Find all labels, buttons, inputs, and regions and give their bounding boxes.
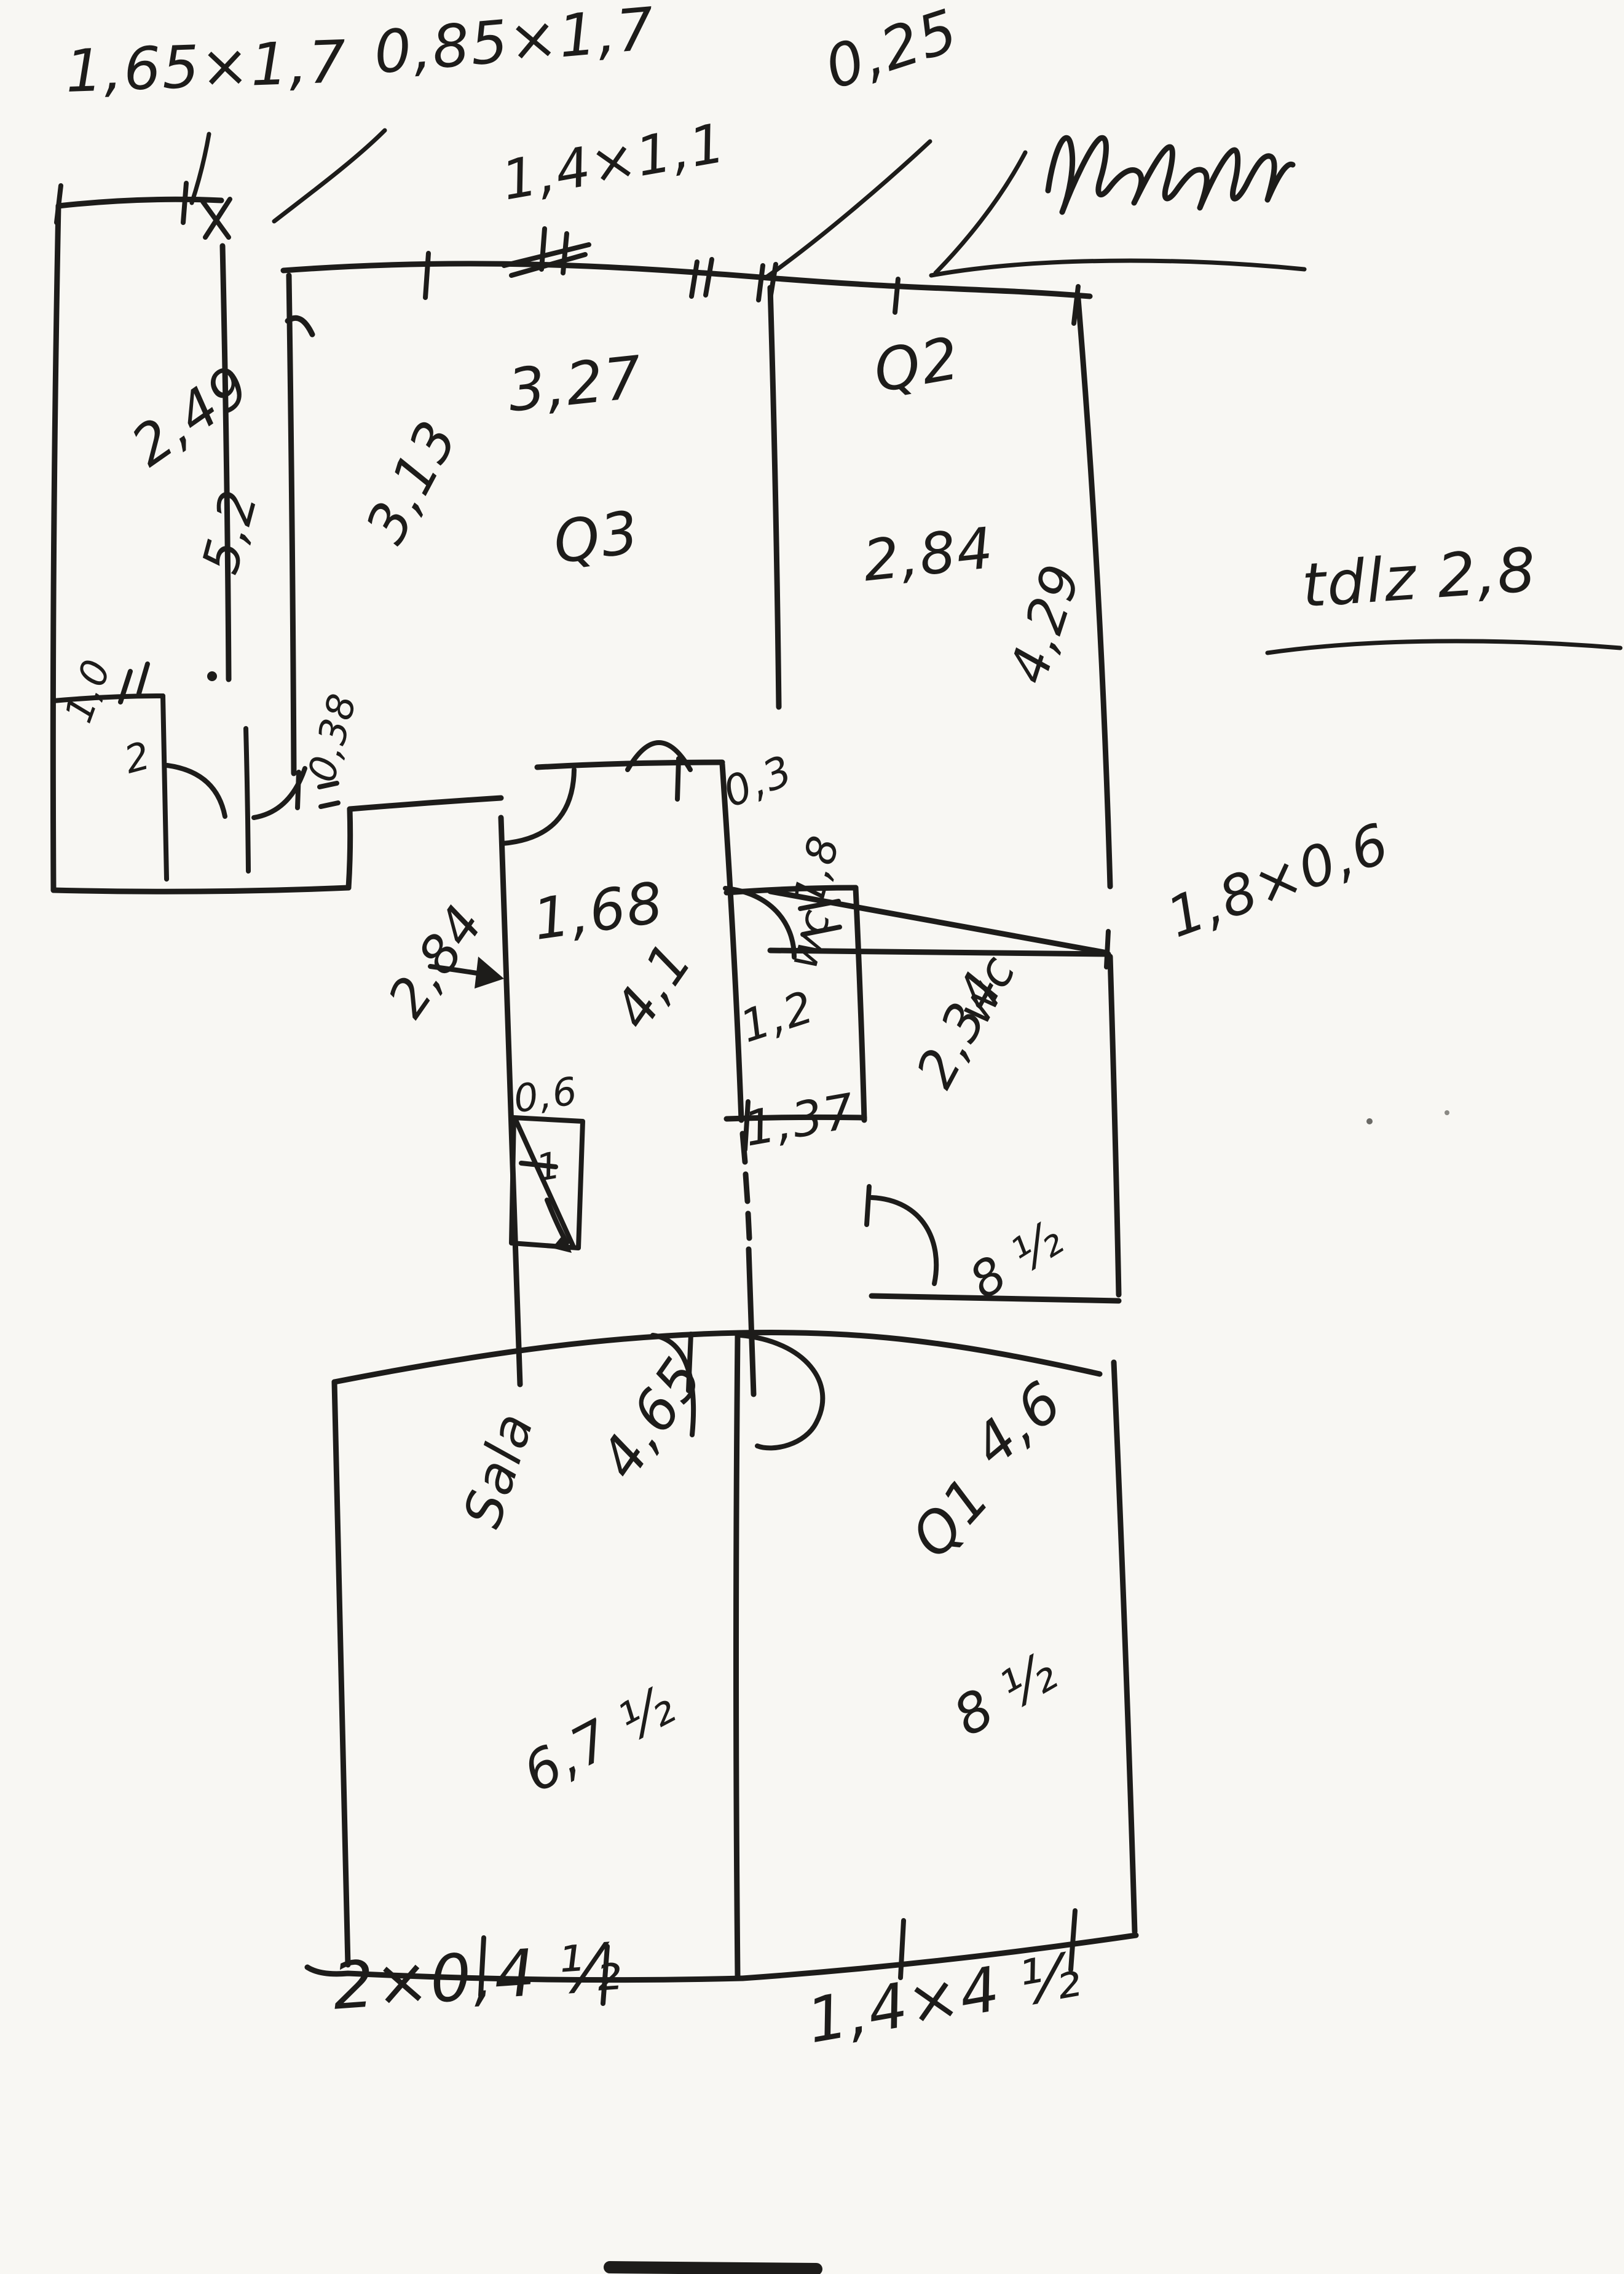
q2-name-label: Q2 [870,330,964,402]
wall-rooma-bottom [53,888,349,891]
wall-sala-q1-divider [736,1335,738,1976]
bottom-dim-left-label: 2×0,4 ½ [331,1935,624,2019]
dim-label-window-a: 1,65×1,7 [65,33,348,101]
q3-name-label: Q3 [550,503,643,573]
wall-wc2-right [1110,957,1119,1295]
speck-1 [1366,1118,1373,1124]
tick-window-1 [542,229,545,269]
closet-slash2 [139,664,148,693]
tick-top-3 [706,259,712,295]
tick-wedge-end [1106,931,1108,967]
closet-dot [207,671,217,681]
scan-edge-strip [610,2267,816,2269]
wall-wc-divider [856,888,864,1120]
shaft-width-label: 0,6 [511,1072,580,1118]
tick-top-1 [425,253,428,298]
wall-bottom-band-top [334,1333,1100,1382]
wall-q1-right [1114,1362,1135,1932]
leader-085 [274,130,385,221]
wall-rooma-left [53,206,58,890]
wc2-door-arc [872,1198,936,1284]
leader-scribble [936,152,1025,273]
closet-right [163,696,167,879]
wc2-door-tick [867,1186,869,1225]
wall-hall-right-lower [749,1249,754,1394]
leader-025 [767,141,930,277]
wall-rooma-right [223,246,229,679]
q3-door-tick [677,759,679,799]
wall-hall-right-dash2 [746,1174,747,1201]
window-icon [504,245,589,275]
note-label: tdlz 2,8 [1300,540,1539,616]
hall-entry-arc [503,770,574,843]
q2-width-label: 2,84 [861,520,996,590]
wall-sala-left [334,1382,348,1965]
floor-plan-sheet: 1,65×1,7 0,85×1,7 1,4×1,1 0,25 tdlz 2,8 … [0,0,1624,2274]
step-dash2 [321,803,338,807]
tick-top-4 [759,266,763,300]
scribble-word [1048,138,1293,212]
wall-q3-left [289,275,294,773]
wall-step-top [350,798,501,809]
note-underline [1267,641,1620,653]
tick-rooma-2 [183,183,186,223]
q3-width-label: 3,27 [505,349,645,420]
rooma-door-tick [298,772,299,808]
illegible-scribble [1048,138,1293,212]
hall-width-label: 1,68 [530,874,668,949]
wall-q3-q2-divider [770,288,779,707]
tick-top-6 [895,279,898,312]
scribble-underline [931,261,1304,275]
leader-165 [192,134,209,203]
closet-partition [246,728,248,871]
wall-hall-right-dash3 [748,1214,749,1238]
wall-step [349,809,350,888]
tick-top-2 [692,262,697,296]
speck-2 [1445,1110,1449,1115]
wall-hall-right-upper [722,764,741,1120]
wall-rooma-top [58,199,221,206]
entry-arrow-head [475,957,504,989]
closet-door-arc [167,765,225,816]
